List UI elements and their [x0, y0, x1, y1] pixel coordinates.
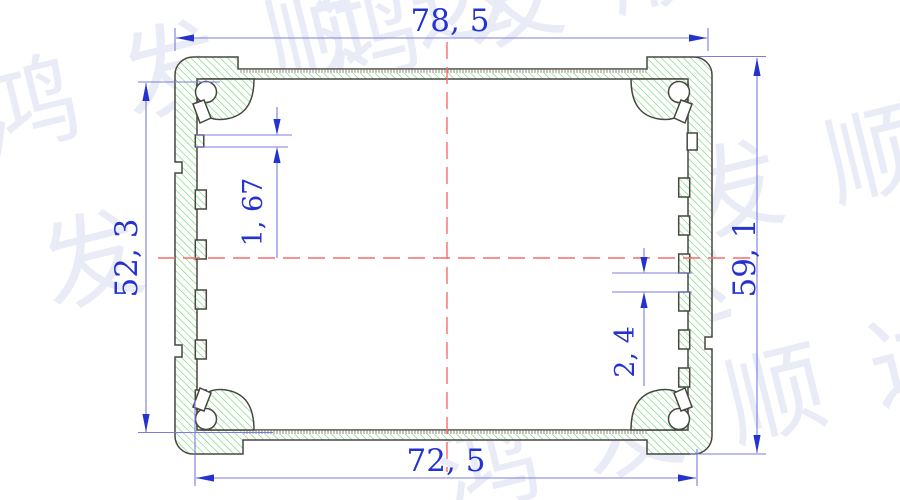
- tooth: [195, 190, 206, 209]
- arrowhead: [142, 414, 149, 432]
- arrowhead: [196, 474, 214, 481]
- dimension-top-width: 78, 5: [175, 3, 708, 51]
- tooth: [679, 368, 690, 387]
- dimension-value: 78, 5: [411, 3, 490, 39]
- screw-hole: [669, 82, 690, 103]
- arrowhead: [689, 34, 707, 41]
- tooth: [679, 292, 690, 311]
- arrowhead: [678, 474, 696, 481]
- dimension-value: 2, 4: [610, 326, 641, 378]
- extrusion-profile: [175, 57, 712, 454]
- tooth: [679, 254, 690, 273]
- tooth: [679, 216, 690, 235]
- profile-drawing: 78, 5 72, 5 52, 3 59, 1: [0, 0, 900, 500]
- arrowhead: [753, 58, 760, 76]
- tooth: [195, 135, 204, 147]
- screw-hole: [669, 409, 690, 430]
- dimension-value: 52, 3: [109, 219, 145, 298]
- dimension-value: 1, 67: [238, 178, 269, 247]
- tooth: [679, 178, 690, 197]
- tooth: [195, 290, 206, 309]
- bottom-serration: [244, 431, 647, 434]
- top-serration: [239, 70, 647, 73]
- arrowhead: [142, 83, 149, 101]
- drawing-canvas: 鸿发顺达 鸿发顺达 鸿发顺达 鸿发顺达 鸿发顺达 鸿发顺达: [0, 0, 900, 500]
- screw-hole: [196, 82, 217, 103]
- arrowhead: [176, 34, 194, 41]
- wall-slot: [687, 133, 697, 150]
- dimension-value: 72, 5: [407, 443, 486, 479]
- screw-hole: [196, 409, 217, 430]
- tooth: [195, 240, 206, 259]
- tooth: [195, 340, 206, 359]
- dimension-value: 59, 1: [727, 219, 763, 298]
- arrowhead: [753, 435, 760, 453]
- tooth: [679, 330, 690, 349]
